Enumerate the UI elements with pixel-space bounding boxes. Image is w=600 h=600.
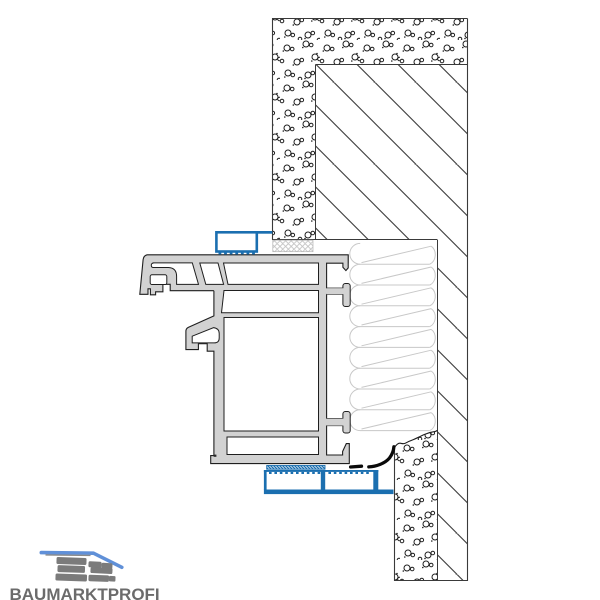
svg-text:BAUMARKTPROFI: BAUMARKTPROFI <box>10 585 160 600</box>
